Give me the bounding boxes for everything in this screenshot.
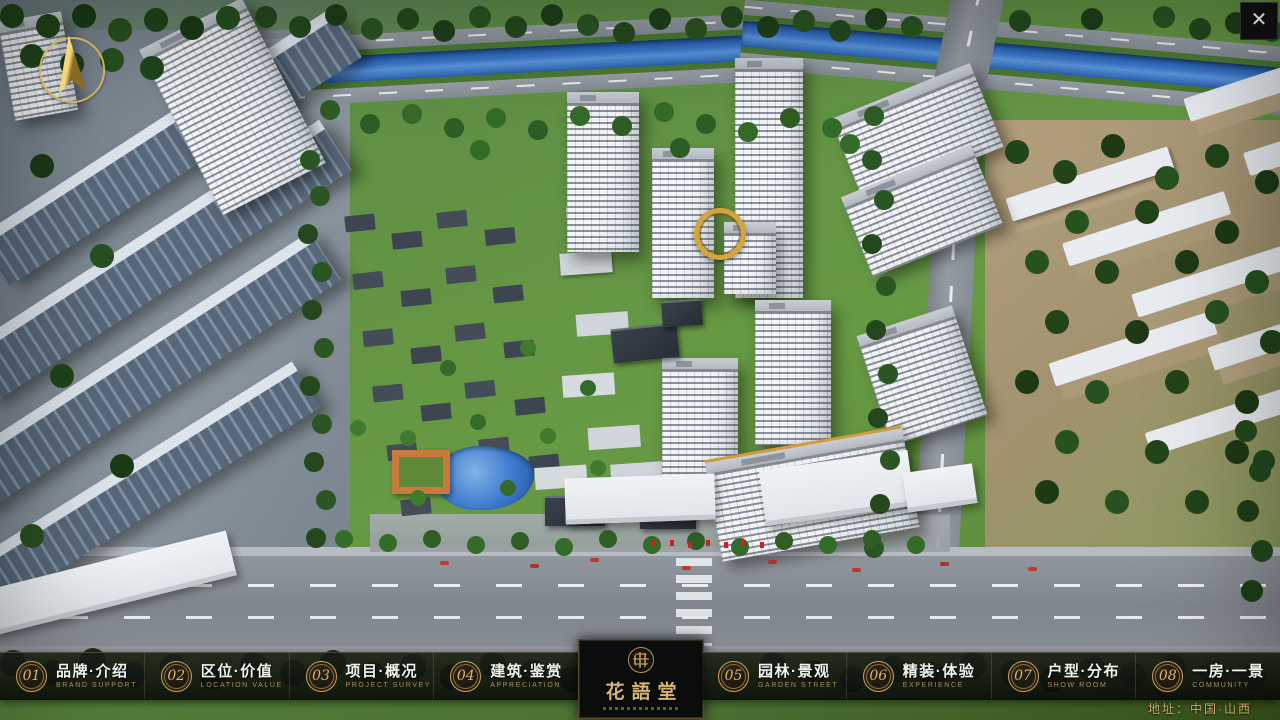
nav-number-badge: 03 bbox=[306, 661, 337, 692]
tree-cluster-garden bbox=[350, 420, 366, 436]
project-address: 地址：中国·山西 bbox=[1148, 700, 1252, 717]
nav-item-views[interactable]: 08 一房·一景 COMMUNITY bbox=[1136, 653, 1280, 699]
tree-band-north bbox=[255, 6, 277, 28]
nav-number-badge: 02 bbox=[161, 661, 192, 692]
tree-cluster-east-district bbox=[1005, 140, 1029, 164]
nav-subtitle: SHOW ROOM bbox=[1048, 682, 1121, 689]
nav-subtitle: GARDEN STREET bbox=[758, 682, 838, 689]
cars-on-road bbox=[590, 558, 599, 562]
nav-title: 园林·景观 bbox=[758, 664, 838, 679]
entrance-flags bbox=[652, 540, 656, 546]
tree-cluster-west bbox=[0, 4, 24, 28]
nav-number-badge: 07 bbox=[1008, 661, 1039, 692]
nav-title: 建筑·鉴赏 bbox=[490, 664, 563, 679]
chinese-roof-pavilion bbox=[610, 323, 679, 364]
compass-icon[interactable] bbox=[34, 29, 111, 108]
nav-title: 区位·价值 bbox=[201, 664, 283, 679]
nav-item-brand[interactable]: 01 品牌·介绍 BRAND SUPPORT bbox=[0, 653, 145, 699]
tree-strip-east-edge bbox=[1235, 420, 1257, 442]
gold-ring-landmark bbox=[694, 208, 746, 260]
nav-item-location[interactable]: 02 区位·价值 LOCATION VALUE bbox=[145, 653, 290, 699]
bottom-nav-left: 01 品牌·介绍 BRAND SUPPORT 02 区位·价值 LOCATION… bbox=[0, 652, 578, 700]
midrise-blocks bbox=[559, 250, 612, 276]
logo-tagline bbox=[603, 707, 679, 710]
tree-band-compound-north bbox=[320, 100, 340, 120]
nav-title: 精装·体验 bbox=[903, 664, 976, 679]
close-icon: ✕ bbox=[1251, 9, 1268, 31]
nav-number-badge: 05 bbox=[718, 661, 749, 692]
nav-subtitle: APPRECIATION bbox=[490, 682, 563, 689]
commercial-block bbox=[903, 463, 978, 512]
nav-number-badge: 04 bbox=[450, 661, 481, 692]
tree-strip-east bbox=[862, 150, 882, 170]
logo-title: 花語堂 bbox=[598, 677, 683, 704]
nav-number-badge: 08 bbox=[1152, 661, 1183, 692]
nav-item-project[interactable]: 03 项目·概况 PROJECT SURVEY bbox=[290, 653, 435, 699]
nav-subtitle: BRAND SUPPORT bbox=[56, 682, 137, 689]
nav-subtitle: LOCATION VALUE bbox=[201, 682, 283, 689]
courtyard-building bbox=[392, 450, 450, 494]
residential-tower bbox=[567, 92, 639, 252]
nav-title: 品牌·介绍 bbox=[56, 664, 137, 679]
villa-roof-grid bbox=[344, 213, 376, 232]
tree-strip-west bbox=[300, 150, 320, 170]
nav-item-interior[interactable]: 06 精装·体验 EXPERIENCE bbox=[847, 653, 992, 699]
nav-title: 户型·分布 bbox=[1048, 664, 1121, 679]
chinese-roof-pavilion bbox=[661, 299, 703, 328]
bottom-nav-right: 05 园林·景观 GARDEN STREET 06 精装·体验 EXPERIEN… bbox=[702, 652, 1280, 700]
nav-subtitle: EXPERIENCE bbox=[903, 682, 976, 689]
nav-subtitle: PROJECT SURVEY bbox=[346, 682, 432, 689]
crosswalk bbox=[676, 558, 712, 646]
nav-subtitle: COMMUNITY bbox=[1192, 682, 1265, 689]
landscape-pond bbox=[436, 446, 534, 510]
street-trees-north bbox=[335, 530, 353, 548]
residential-tower bbox=[755, 300, 831, 445]
nav-item-garden[interactable]: 05 园林·景观 GARDEN STREET bbox=[702, 653, 847, 699]
commercial-block bbox=[564, 473, 716, 524]
nav-number-badge: 01 bbox=[16, 661, 47, 692]
nav-title: 项目·概况 bbox=[346, 664, 432, 679]
project-logo: 花語堂 bbox=[578, 639, 704, 719]
nav-item-architecture[interactable]: 04 建筑·鉴赏 APPRECIATION bbox=[434, 653, 578, 699]
close-button[interactable]: ✕ bbox=[1240, 2, 1278, 40]
nav-item-floorplan[interactable]: 07 户型·分布 SHOW ROOM bbox=[992, 653, 1137, 699]
nav-number-badge: 06 bbox=[863, 661, 894, 692]
seal-emblem-icon bbox=[628, 647, 654, 673]
masterplan-render[interactable] bbox=[0, 0, 1280, 720]
nav-title: 一房·一景 bbox=[1192, 664, 1265, 679]
